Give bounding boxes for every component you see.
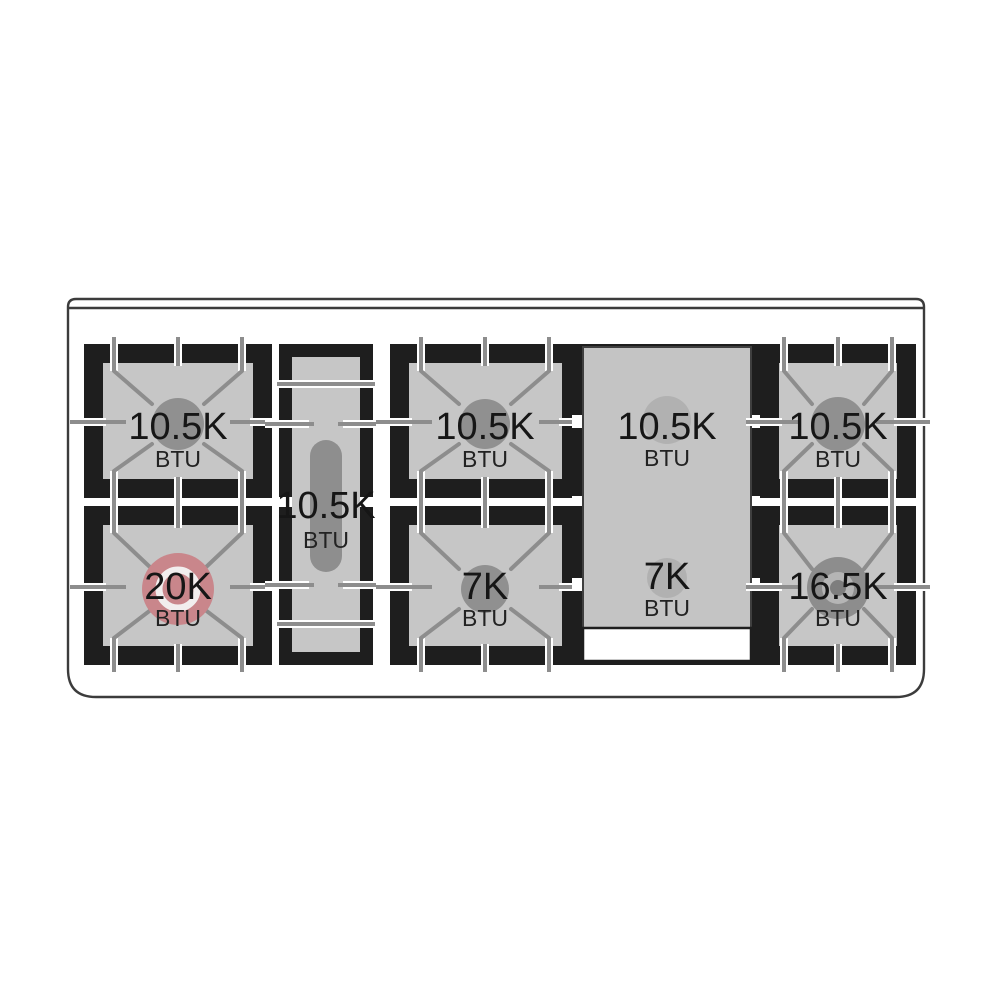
burner-power-label: 10.5K <box>276 485 375 527</box>
cooktop-diagram: 10.5K BTU 20K BTU 10.5K BTU 10.5K BTU <box>0 0 1000 1000</box>
burner-unit-label: BTU <box>644 595 690 621</box>
griddle-handle <box>583 628 751 661</box>
burner-unit-label: BTU <box>462 446 508 472</box>
griddle-zone: 10.5K BTU 7K BTU <box>572 344 762 665</box>
burner-front-right: 16.5K BTU <box>746 499 930 672</box>
burner-rear-center: 10.5K BTU <box>376 337 595 505</box>
burner-power-label: 10.5K <box>617 406 716 448</box>
burner-front-left: 20K BTU <box>70 499 286 672</box>
burner-unit-label: BTU <box>303 527 349 553</box>
burner-rear-right: 10.5K BTU <box>746 337 930 505</box>
burner-power-label: 16.5K <box>788 566 887 608</box>
burner-power-label: 7K <box>644 556 690 598</box>
burner-power-label: 20K <box>144 566 212 608</box>
burner-front-center: 7K BTU <box>376 499 595 672</box>
burner-unit-label: BTU <box>462 605 508 631</box>
burner-unit-label: BTU <box>644 445 690 471</box>
burner-power-label: 10.5K <box>435 406 534 448</box>
burner-power-label: 7K <box>462 566 508 608</box>
burner-unit-label: BTU <box>155 605 201 631</box>
burner-unit-label: BTU <box>815 446 861 472</box>
burner-power-label: 10.5K <box>128 406 227 448</box>
burner-rear-left: 10.5K BTU <box>70 337 286 505</box>
burner-unit-label: BTU <box>155 446 201 472</box>
burner-center-left-oval: 10.5K BTU <box>265 344 387 665</box>
burner-unit-label: BTU <box>815 605 861 631</box>
burner-power-label: 10.5K <box>788 406 887 448</box>
